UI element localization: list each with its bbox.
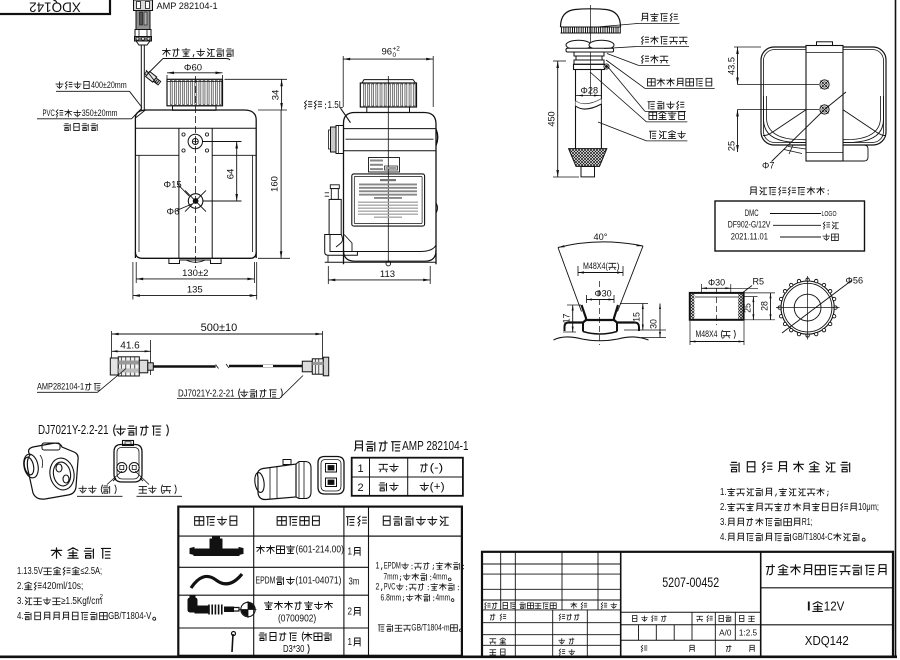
svg-text:EPDM: EPDM [256,576,276,587]
svg-text:(101-04071): (101-04071) [295,576,341,587]
svg-text:Φ60: Φ60 [184,63,202,74]
svg-text:XDQ142: XDQ142 [805,634,849,648]
svg-text:LOGO: LOGO [822,209,837,218]
svg-text:1:2.5: 1:2.5 [739,629,758,638]
svg-text:41.6: 41.6 [120,341,140,352]
svg-text:EPDM: EPDM [384,561,401,571]
svg-text:5207-00452: 5207-00452 [662,574,719,590]
svg-text:DJ7021Y-2.2-21: DJ7021Y-2.2-21 [38,423,109,437]
svg-text:10μm;: 10μm; [858,502,879,513]
svg-text:2: 2 [100,593,104,600]
svg-text:96: 96 [382,47,393,58]
svg-text:2: 2 [376,582,380,592]
svg-text:DF902-G/12V: DF902-G/12V [728,219,771,230]
svg-text:500±10: 500±10 [201,322,238,334]
svg-text:12V: 12V [824,600,845,614]
svg-text:34: 34 [271,90,282,101]
svg-text:PVC: PVC [384,582,396,592]
svg-text:≤2.5A;: ≤2.5A; [81,566,103,577]
svg-text:Φ30: Φ30 [595,289,612,299]
svg-text:2021.11.01: 2021.11.01 [731,230,768,241]
svg-text:0: 0 [393,52,397,59]
svg-text:1: 1 [348,547,353,558]
svg-text:130±2: 130±2 [182,268,208,279]
svg-text:2: 2 [357,482,363,494]
svg-text:1: 1 [357,463,363,475]
svg-text:D3*30: D3*30 [283,644,305,655]
svg-text:R5: R5 [753,277,765,287]
svg-text:400±20mm: 400±20mm [91,79,127,90]
svg-text:135: 135 [187,285,203,296]
svg-text:GB/T1804-C: GB/T1804-C [792,532,832,543]
svg-text:350±20mm: 350±20mm [82,107,118,118]
svg-text:64: 64 [226,169,237,180]
svg-text:25: 25 [742,303,752,313]
svg-text:4.: 4. [720,532,727,543]
svg-text:1: 1 [376,561,380,571]
svg-text:M48X4: M48X4 [696,328,718,339]
svg-text:420ml/10s;: 420ml/10s; [42,581,83,592]
svg-text:40°: 40° [594,232,608,242]
svg-text:(0700902): (0700902) [278,614,316,625]
svg-text:): ) [617,260,620,271]
svg-text:3m: 3m [349,577,360,588]
svg-text:3.: 3. [720,517,727,528]
svg-text:GB/T1804-m: GB/T1804-m [411,623,449,633]
svg-text:7mm: 7mm [384,572,399,582]
svg-text:1.13.5V: 1.13.5V [17,566,43,577]
svg-text:I: I [806,600,812,614]
svg-text:2.: 2. [720,502,727,513]
svg-text:6.8mm: 6.8mm [381,592,402,602]
svg-text:25: 25 [727,141,737,151]
svg-text:≥1.5Kgf/cm: ≥1.5Kgf/cm [61,596,102,607]
svg-text:15: 15 [632,312,642,322]
svg-text:AMP 282104-1: AMP 282104-1 [402,438,468,453]
svg-text:PVC: PVC [43,107,55,118]
svg-text:2.: 2. [17,581,24,592]
svg-text:3.: 3. [17,596,24,607]
svg-text:4.: 4. [17,611,24,622]
svg-text:GB/T1804-V: GB/T1804-V [108,611,152,622]
svg-text:XDQ142: XDQ142 [29,0,81,15]
svg-text:2: 2 [348,607,353,618]
svg-text:113: 113 [380,269,395,280]
svg-text:Φ56: Φ56 [846,276,864,286]
svg-text:A/0: A/0 [719,629,732,638]
svg-text:Φ28: Φ28 [581,86,599,96]
svg-text:Φ6: Φ6 [167,207,180,218]
svg-text:AMP282104-1: AMP282104-1 [37,381,84,391]
svg-text:M48X4(: M48X4( [583,260,608,271]
svg-text:1.: 1. [720,487,727,498]
svg-text:(+): (+) [430,481,445,493]
svg-text:(601-214.00): (601-214.00) [296,545,344,556]
svg-text:30: 30 [649,319,659,329]
svg-text:17: 17 [562,314,572,324]
svg-text:4mm: 4mm [436,592,451,602]
svg-text:R1;: R1; [802,517,813,528]
svg-text:43.5: 43.5 [727,57,737,75]
svg-text:DJ7021Y-2.2-21: DJ7021Y-2.2-21 [178,388,235,399]
svg-text:160: 160 [270,176,281,192]
svg-text:4mm: 4mm [433,572,448,582]
svg-text:28: 28 [760,301,770,311]
svg-text:1: 1 [348,637,353,648]
svg-text:DMC: DMC [745,207,759,218]
svg-text:450: 450 [547,111,557,126]
svg-text:AMP 282104-1: AMP 282104-1 [157,1,218,11]
svg-text:(-): (-) [430,462,444,474]
svg-text:Φ30: Φ30 [708,278,725,288]
svg-text:Φ7: Φ7 [762,161,774,171]
